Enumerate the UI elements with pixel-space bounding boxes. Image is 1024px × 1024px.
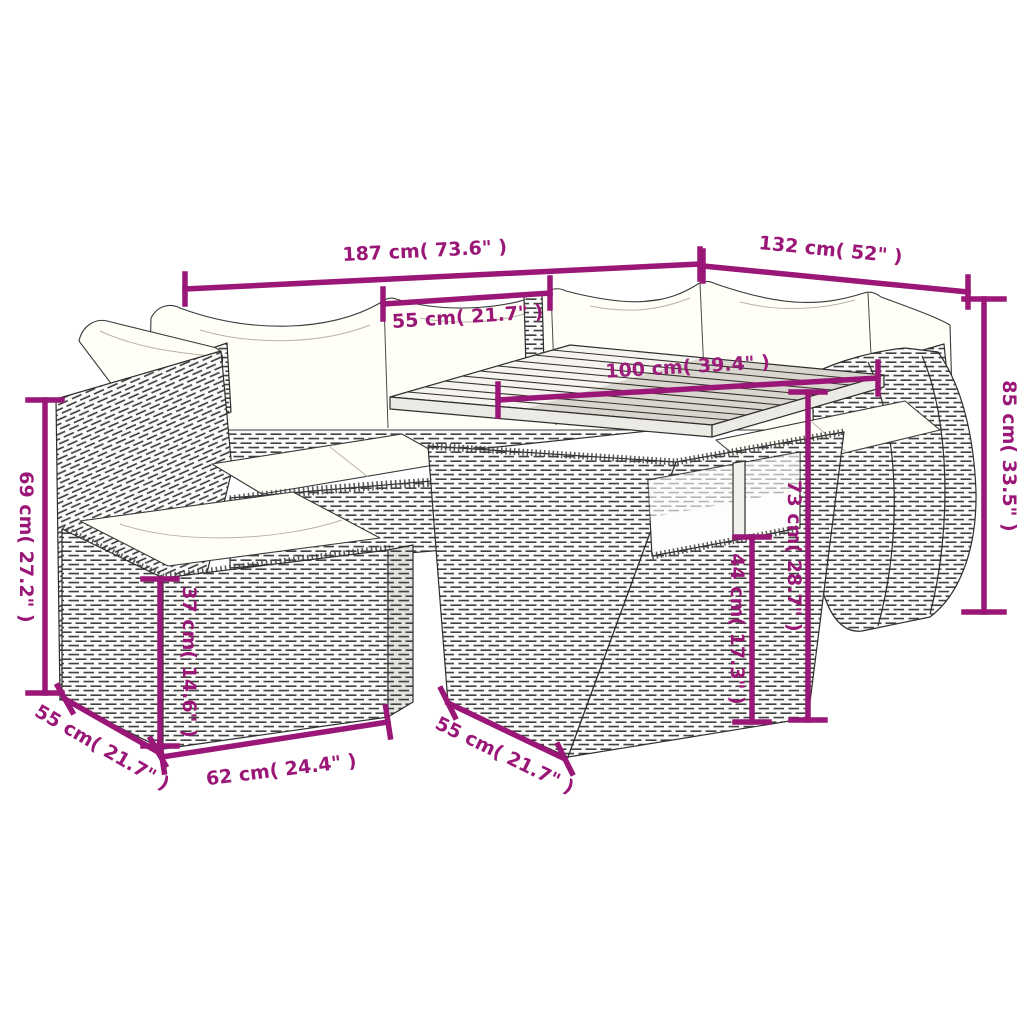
diagram-canvas: 187 cm( 73.6" ) 132 cm( 52" ) 55 cm( 21.… <box>0 0 1024 1024</box>
dimension-label-total-height: 85 cm( 33.5" ) <box>998 380 1020 532</box>
dimension-label-sofa-left-width: 187 cm( 73.6" ) <box>342 236 508 266</box>
footstool-right-face-shade <box>388 545 413 717</box>
dimension-label-left-back-height: 69 cm( 27.2" ) <box>15 471 37 623</box>
dimension-label-table-clearance-height: 44 cm( 17.3" ) <box>726 553 748 705</box>
dimension-sofa-left-width: 187 cm( 73.6" ) <box>185 236 700 304</box>
product-dimension-diagram: 187 cm( 73.6" ) 132 cm( 52" ) 55 cm( 21.… <box>0 0 1024 1024</box>
dimension-label-footstool-width: 62 cm( 24.4" ) <box>205 750 358 790</box>
dimension-label-footstool-height: 37 cm( 14.6" ) <box>178 586 200 738</box>
footstool <box>62 492 413 749</box>
dimension-left-back-height: 69 cm( 27.2" ) <box>15 400 62 693</box>
dimension-label-table-height: 73 cm( 28.7" ) <box>783 480 805 632</box>
dimension-label-sofa-right-width: 132 cm( 52" ) <box>758 232 904 268</box>
